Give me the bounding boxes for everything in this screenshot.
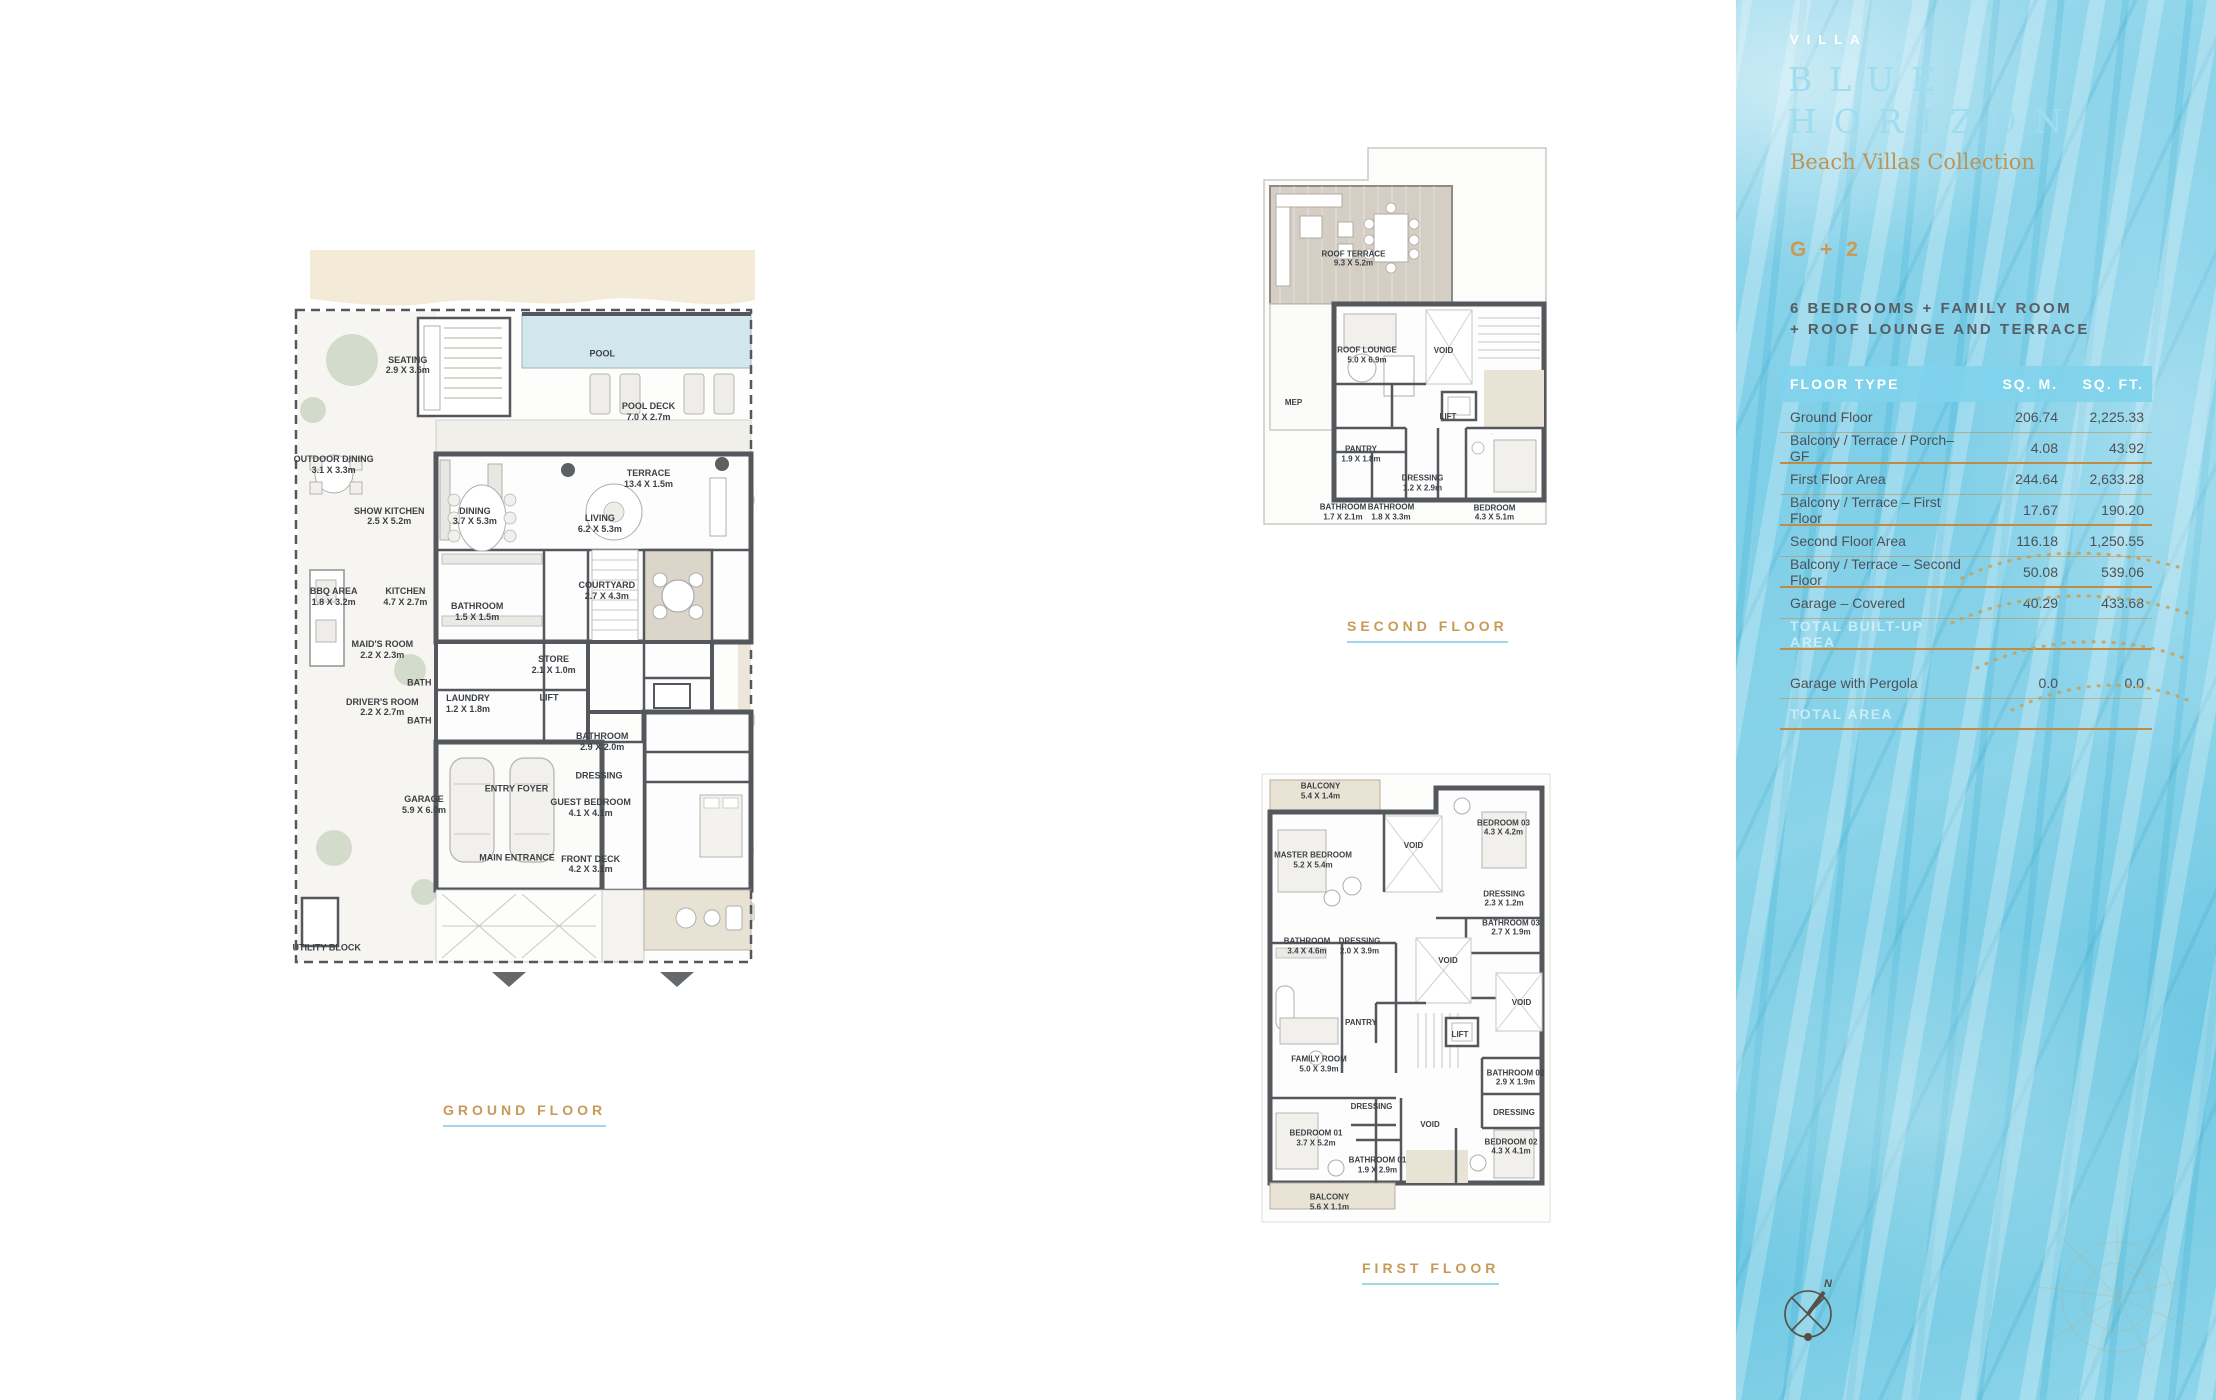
room-label: DINING3.7 X 5.3m	[453, 506, 497, 528]
room-label: VOID	[1512, 998, 1532, 1008]
room-label: LIFT	[1452, 1030, 1469, 1040]
room-label: KITCHEN4.7 X 2.7m	[383, 587, 427, 609]
ground-floor-plan: SEATING2.9 X 3.5mPOOLPOOL DECK7.0 X 2.7m…	[292, 250, 755, 1005]
room-label: DRESSING2.3 X 1.2m	[1483, 889, 1525, 908]
room-label: DRESSING1.2 X 2.9m	[1402, 473, 1444, 492]
room-label: UTILITY BLOCK	[293, 943, 361, 954]
room-label: LAUNDRY1.2 X 1.8m	[446, 693, 490, 715]
room-label: LIFT	[1440, 412, 1457, 422]
room-label: LIFT	[539, 692, 558, 703]
room-label: VOID	[1438, 956, 1458, 966]
first-floor-room-labels: BALCONY5.4 X 1.4mMASTER BEDROOM5.2 X 5.4…	[1256, 768, 1556, 1228]
brand-name-line2: HORIZON	[1788, 102, 2080, 141]
compass: N	[1780, 1278, 1844, 1348]
room-label: OUTDOOR DINING3.1 X 3.3m	[294, 454, 374, 476]
room-label: DRESSING	[575, 771, 622, 782]
room-label: FAMILY ROOM5.0 X 3.9m	[1291, 1055, 1347, 1074]
room-label: BEDROOM 024.3 X 4.1m	[1485, 1137, 1538, 1156]
room-label: BEDROOM 013.7 X 5.2m	[1290, 1129, 1343, 1148]
room-label: POOL DECK7.0 X 2.7m	[622, 402, 675, 424]
gold-arc-decoration	[1932, 538, 2192, 738]
compass-icon	[1780, 1278, 1844, 1348]
room-label: MEP	[1285, 399, 1302, 409]
room-label: MAID'S ROOM2.2 X 2.3m	[351, 639, 413, 661]
brand-villa: VILLA	[1790, 32, 1868, 47]
brand-collection: Beach Villas Collection	[1790, 150, 2035, 174]
room-label: BATHROOM 022.9 X 1.9m	[1487, 1068, 1545, 1087]
brochure-page: SEATING2.9 X 3.5mPOOLPOOL DECK7.0 X 2.7m…	[0, 0, 2216, 1400]
first-floor-caption: FIRST FLOOR	[1362, 1260, 1499, 1285]
room-label: ENTRY FOYER	[485, 784, 549, 795]
first-floor-plan: BALCONY5.4 X 1.4mMASTER BEDROOM5.2 X 5.4…	[1256, 768, 1556, 1228]
room-label: COURTYARD2.7 X 4.3m	[578, 580, 635, 602]
room-label: VOID	[1404, 841, 1424, 851]
room-label: BALCONY5.6 X 1.1m	[1310, 1193, 1350, 1212]
room-label: BBQ AREA1.8 X 3.2m	[310, 587, 358, 609]
room-label: BATH	[407, 677, 431, 688]
compass-north-label: N	[1824, 1278, 1832, 1290]
room-label: MAIN ENTRANCE	[479, 852, 555, 863]
room-label: BALCONY5.4 X 1.4m	[1301, 781, 1341, 800]
second-floor-plan: ROOF TERRACE9.3 X 5.2mROOF LOUNGE5.0 X 6…	[1256, 132, 1556, 592]
floor-table-row: Balcony / Terrace – First Floor17.67190.…	[1780, 495, 2152, 526]
room-label: SHOW KITCHEN2.5 X 5.2m	[354, 506, 425, 528]
room-label: BATHROOM2.9 X 2.0m	[576, 731, 628, 753]
room-label: ROOF TERRACE9.3 X 5.2m	[1322, 249, 1386, 268]
room-label: BEDROOM4.3 X 5.1m	[1474, 503, 1516, 522]
room-label: SEATING2.9 X 3.5m	[386, 355, 430, 377]
floor-table-row: First Floor Area244.642,633.28	[1780, 464, 2152, 495]
room-label: DRESSING2.0 X 3.9m	[1339, 937, 1381, 956]
room-label: GARAGE5.9 X 6.0m	[402, 794, 446, 816]
unit-type: G + 2	[1790, 238, 1862, 262]
second-floor-caption: SECOND FLOOR	[1347, 618, 1508, 643]
room-label: DRESSING	[1351, 1102, 1393, 1112]
room-label: BATHROOM3.4 X 4.6m	[1284, 937, 1331, 956]
sidebar: VILLA BLUE HORIZON Beach Villas Collecti…	[1736, 0, 2216, 1400]
unit-description-line1: 6 BEDROOMS + FAMILY ROOM	[1790, 298, 2090, 319]
room-label: FRONT DECK4.2 X 3.1m	[561, 854, 620, 876]
room-label: GUEST BEDROOM4.1 X 4.1m	[550, 797, 631, 819]
brand-name-line1: BLUE	[1788, 60, 1952, 99]
header-floor-type: FLOOR TYPE	[1790, 376, 1972, 392]
starburst-watermark	[2032, 1222, 2202, 1372]
room-label: BEDROOM 034.3 X 4.2m	[1477, 818, 1530, 837]
floor-table-header: FLOOR TYPE SQ. M. SQ. FT.	[1780, 366, 2152, 402]
room-label: ROOF LOUNGE5.0 X 6.9m	[1337, 346, 1397, 365]
header-sqm: SQ. M.	[1972, 376, 2058, 392]
floor-table-row: Ground Floor206.742,225.33	[1780, 402, 2152, 433]
unit-description-line2: + ROOF LOUNGE AND TERRACE	[1790, 319, 2090, 340]
room-label: BATH	[407, 716, 431, 727]
room-label: BATHROOM1.7 X 2.1m	[1320, 503, 1367, 522]
room-label: BATHROOM1.5 X 1.5m	[451, 602, 503, 624]
room-label: DRESSING	[1493, 1108, 1535, 1118]
room-label: PANTRY	[1345, 1019, 1377, 1029]
room-label: BATHROOM1.8 X 3.3m	[1368, 503, 1415, 522]
room-label: LIVING6.2 X 5.3m	[578, 513, 622, 535]
room-label: MASTER BEDROOM5.2 X 5.4m	[1274, 850, 1352, 869]
room-label: BATHROOM 032.7 X 1.9m	[1482, 918, 1540, 937]
room-label: BATHROOM 011.9 X 2.9m	[1349, 1156, 1407, 1175]
header-sqft: SQ. FT.	[2058, 376, 2144, 392]
room-label: VOID	[1420, 1120, 1440, 1130]
room-label: STORE2.1 X 1.0m	[532, 654, 576, 676]
ground-floor-room-labels: SEATING2.9 X 3.5mPOOLPOOL DECK7.0 X 2.7m…	[292, 250, 755, 1005]
floor-table-row: Balcony / Terrace / Porch–GF4.0843.92	[1780, 433, 2152, 464]
ground-floor-caption: GROUND FLOOR	[443, 1102, 606, 1127]
unit-description: 6 BEDROOMS + FAMILY ROOM + ROOF LOUNGE A…	[1790, 298, 2090, 340]
room-label: TERRACE13.4 X 1.5m	[624, 468, 673, 490]
second-floor-room-labels: ROOF TERRACE9.3 X 5.2mROOF LOUNGE5.0 X 6…	[1256, 132, 1556, 592]
room-label: PANTRY1.9 X 1.8m	[1341, 444, 1380, 463]
room-label: POOL	[589, 349, 615, 360]
room-label: VOID	[1434, 346, 1454, 356]
